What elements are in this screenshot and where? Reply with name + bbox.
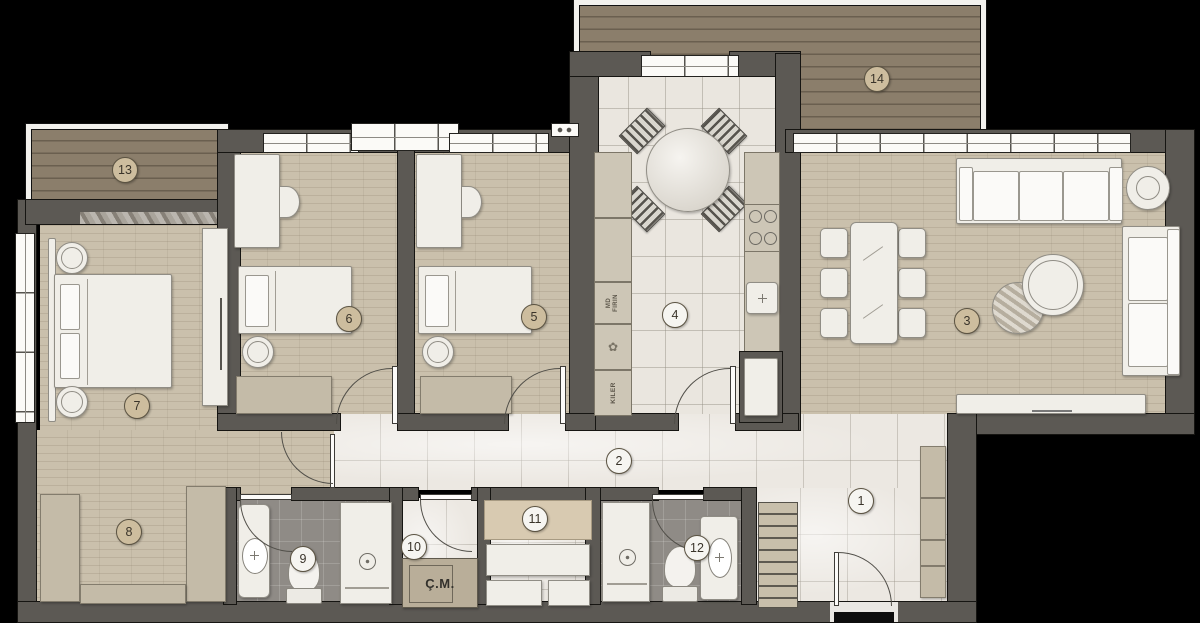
entry-cabinet: [548, 580, 590, 606]
room-marker-10: 10: [401, 534, 427, 560]
dining-table: [850, 222, 898, 344]
room-marker-13: 13: [112, 157, 138, 183]
pouf: [1126, 166, 1170, 210]
door-leaf-bedroom-5: [560, 366, 566, 424]
room-marker-11: 11: [522, 506, 548, 532]
window-living: [794, 134, 1130, 152]
kitchen-cabinet: [594, 218, 632, 282]
floor-plan: MDFIRIN ✿ KILER: [0, 0, 1200, 623]
room-marker-8: 8: [116, 519, 142, 545]
hall-cabinet: [920, 540, 946, 566]
hall-cabinet: [920, 446, 946, 498]
wall-living-bottom: [948, 414, 1194, 434]
wardrobe-bedroom-6: [236, 376, 332, 414]
desk: [416, 154, 462, 248]
fridge: [744, 358, 778, 416]
room-marker-12: 12: [684, 535, 710, 561]
nightstand: [56, 242, 88, 274]
wardrobe-bedroom-5: [420, 376, 512, 414]
hall-cabinet: [920, 498, 946, 540]
dining-chair: [820, 228, 848, 258]
oven-label-line2: FIRIN: [613, 294, 620, 312]
nightstand: [56, 386, 88, 418]
room-marker-5: 5: [521, 304, 547, 330]
mirror: [220, 298, 222, 370]
vent-icon: [552, 124, 578, 136]
wall-corridor-c: [566, 414, 598, 430]
flower-icon: ✿: [595, 325, 631, 369]
washing-machine: Ç.M.: [402, 558, 478, 608]
room-marker-4: 4: [662, 302, 688, 328]
nightstand: [422, 336, 454, 368]
oven-label-line1: MD: [606, 298, 613, 308]
room-marker-2: 2: [606, 448, 632, 474]
tv-unit: [956, 394, 1146, 414]
wardrobe-dressing-right: [186, 486, 226, 602]
cooktop: [744, 204, 780, 252]
wall-corridor-b: [398, 414, 508, 430]
door-leaf-kitchen: [730, 366, 736, 424]
nightstand: [242, 336, 274, 368]
wall-kitchen-bottom-a: [596, 414, 678, 430]
single-bed: [418, 266, 532, 334]
entry-cabinet: [486, 544, 590, 576]
entry-cabinet: [486, 580, 542, 606]
wall-corridor-a: [218, 414, 340, 430]
window-kitchen: [642, 56, 738, 76]
kitchen-cabinet-decor: ✿: [594, 324, 632, 370]
wall-v-12-hall: [742, 488, 756, 604]
room-marker-7: 7: [124, 393, 150, 419]
door-leaf-bedroom-6: [392, 366, 398, 424]
kitchen-cabinet-oven: MDFIRIN: [594, 282, 632, 324]
sink: [708, 538, 732, 578]
dining-chair: [898, 268, 926, 298]
shoe-cabinet: [758, 502, 798, 608]
wardrobe-bedroom-7: [202, 228, 228, 406]
kitchen-cabinet-pantry: KILER: [594, 370, 632, 416]
window-bedroom-7: [16, 234, 34, 422]
room-marker-3: 3: [954, 308, 980, 334]
room-marker-9: 9: [290, 546, 316, 572]
wall-bottomrow-c: [472, 488, 658, 500]
wall-hall-right: [948, 414, 976, 606]
hall-cabinet: [920, 566, 946, 598]
kitchen-cabinet: [594, 152, 632, 218]
dining-chair: [898, 308, 926, 338]
stone-sill: [80, 212, 222, 224]
coffee-table: [1022, 254, 1084, 316]
shower: [340, 502, 392, 604]
washing-machine-label: Ç.M.: [403, 559, 477, 607]
bay-window-6-5: [352, 124, 458, 150]
kitchen-sink: [746, 282, 778, 314]
dining-chair: [820, 268, 848, 298]
entrance-doormat: [834, 612, 894, 623]
pantry-label: KILER: [591, 375, 635, 411]
room-marker-1: 1: [848, 488, 874, 514]
dining-chair: [898, 228, 926, 258]
toilet-tank: [662, 586, 698, 602]
shower: [602, 502, 650, 602]
wall-kitchen-top-left: [570, 52, 650, 76]
dressing-bench: [80, 584, 186, 604]
sofa-two-seat: [1122, 226, 1180, 376]
master-bed: [54, 274, 172, 388]
desk: [234, 154, 280, 248]
window-bedroom-5: [450, 134, 548, 152]
toilet-tank: [286, 588, 322, 604]
dining-chair: [820, 308, 848, 338]
wall-6-5: [398, 130, 414, 430]
room-marker-6: 6: [336, 306, 362, 332]
room-marker-14: 14: [864, 66, 890, 92]
window-bedroom-6: [264, 134, 358, 152]
single-bed: [238, 266, 352, 334]
kitchen-round-table: [646, 128, 730, 212]
wardrobe-dressing-left: [40, 494, 80, 602]
sofa-three-seat: [956, 158, 1122, 224]
